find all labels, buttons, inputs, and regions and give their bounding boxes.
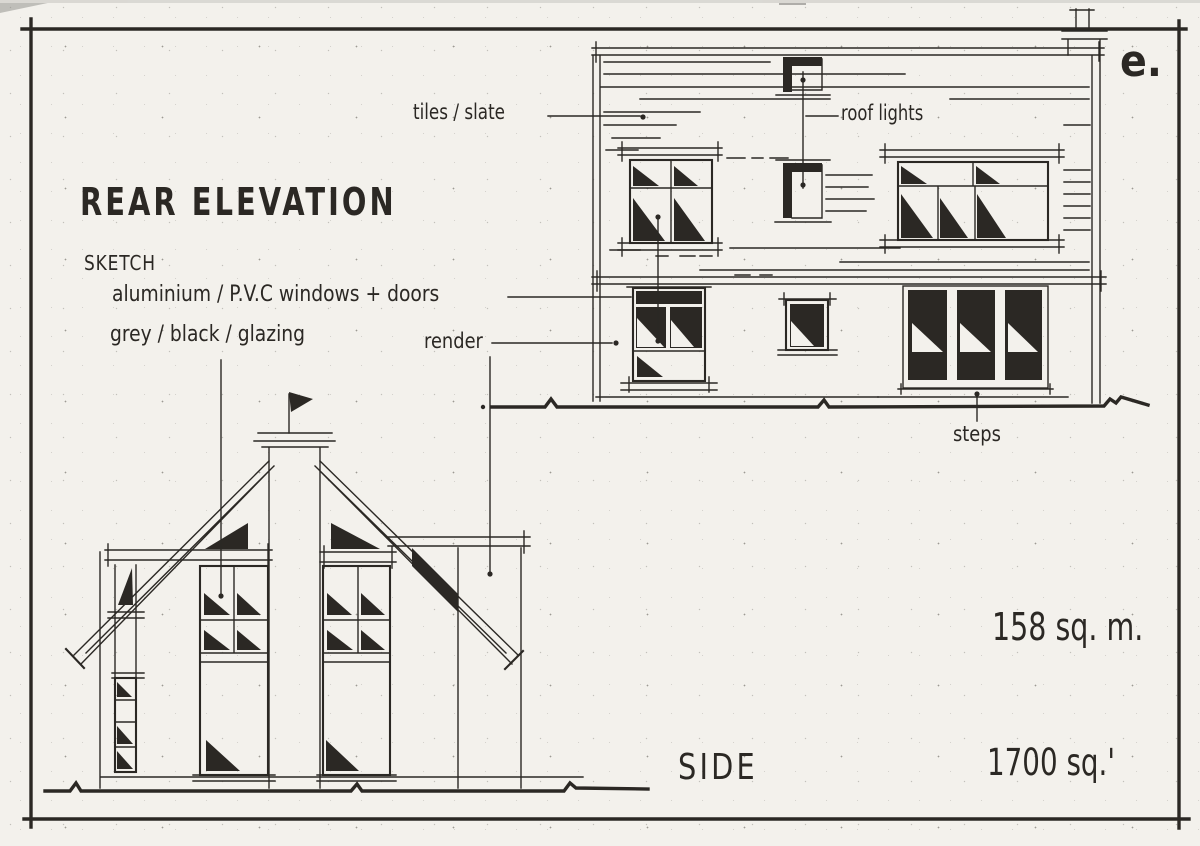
label-steps: steps [953,424,1001,445]
drawing-sheet: REAR ELEVATION SKETCH aluminium / P.V.C … [0,0,1200,846]
drawing-linework [0,0,1200,846]
scan-artifacts [0,0,1200,13]
side-flag [289,392,313,433]
rear-upper-left-window [618,142,722,256]
area-imperial: 1700 sq.' [987,744,1115,781]
rear-elevation-drawing [481,9,1148,409]
rear-upper-right-window [880,144,1064,253]
annotation-leaders [218,72,979,599]
rear-ground-line [481,397,1148,409]
rear-small-window [778,293,837,355]
side-narrow-window [115,678,136,772]
side-elevation-drawing [45,392,648,791]
sketch-label: SKETCH [84,253,156,273]
side-left-window [193,566,275,781]
label-tiles-slate: tiles / slate [413,102,505,123]
label-render: render [424,331,483,352]
side-right-window [317,566,396,781]
sheet-letter: e. [1120,40,1162,84]
drawing-title: REAR ELEVATION [80,183,397,221]
rear-steps [878,384,1068,397]
note-glazing: grey / black / glazing [110,324,305,346]
border-frame [22,19,1189,828]
area-metric: 158 sq. m. [992,608,1143,646]
side-ground-line [45,783,648,791]
label-roof-lights: roof lights [841,103,923,124]
note-windows-doors: aluminium / P.V.C windows + doors [112,284,439,306]
side-view-label: SIDE [678,750,758,786]
side-roof [66,461,523,669]
side-head-bands [105,531,530,568]
rear-lower-left-window [621,287,717,392]
side-walls [100,548,583,788]
rear-patio-doors [903,286,1048,388]
